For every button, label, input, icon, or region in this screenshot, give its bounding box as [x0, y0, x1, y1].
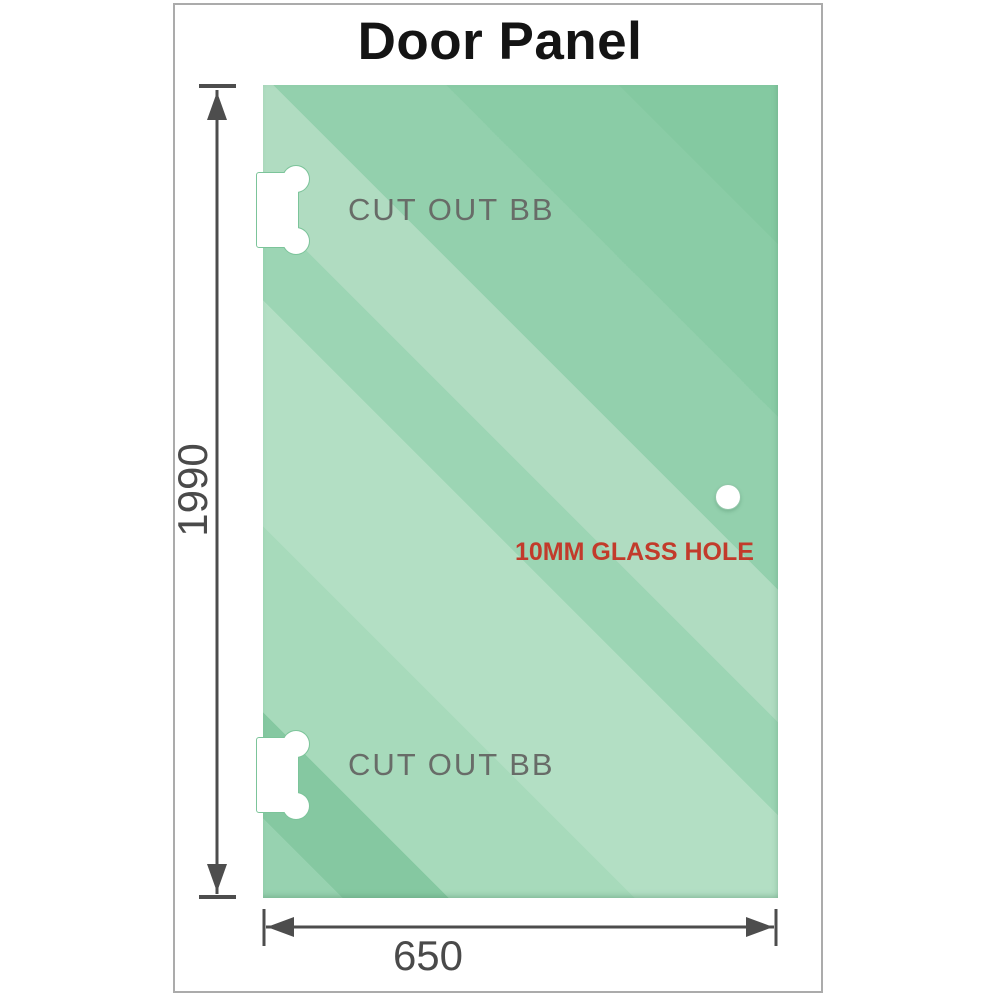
cutout-bottom-label: CUT OUT BB	[348, 746, 608, 784]
width-dimension-value: 650	[358, 934, 498, 978]
page-title: Door Panel	[173, 12, 827, 72]
hinge-cutout-shape	[257, 731, 309, 819]
glass-hole	[715, 484, 741, 510]
hinge-cutout-shape	[257, 166, 309, 254]
hinge-cutout-bottom	[250, 727, 314, 823]
hinge-cutout-top	[250, 162, 314, 258]
height-dimension-value: 1990	[171, 430, 215, 550]
cutout-top-label: CUT OUT BB	[348, 191, 608, 229]
glass-hole-label: 10MM GLASS HOLE	[515, 537, 755, 567]
